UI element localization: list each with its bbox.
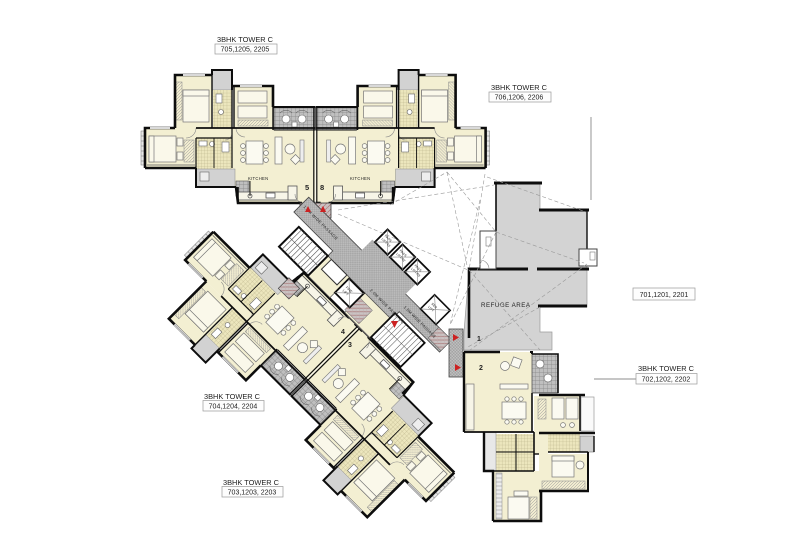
svg-text:3: 3 <box>348 342 352 349</box>
svg-text:8: 8 <box>320 183 324 192</box>
svg-text:REFUGE AREA: REFUGE AREA <box>481 302 531 309</box>
svg-text:KITCHEN: KITCHEN <box>350 176 370 181</box>
svg-text:704,1204, 2204: 704,1204, 2204 <box>209 404 258 411</box>
svg-text:4: 4 <box>341 329 345 336</box>
svg-text:3BHK TOWER C: 3BHK TOWER C <box>223 478 280 487</box>
svg-text:702,1202, 2202: 702,1202, 2202 <box>642 377 691 384</box>
svg-text:3BHK TOWER C: 3BHK TOWER C <box>638 364 695 373</box>
svg-text:KITCHEN: KITCHEN <box>248 176 268 181</box>
svg-text:703,1203, 2203: 703,1203, 2203 <box>228 490 277 497</box>
svg-text:706,1206, 2206: 706,1206, 2206 <box>495 95 544 102</box>
svg-text:705,1205, 2205: 705,1205, 2205 <box>221 47 270 54</box>
svg-text:2: 2 <box>479 365 483 372</box>
svg-text:5: 5 <box>305 183 309 192</box>
svg-text:701,1201, 2201: 701,1201, 2201 <box>640 292 689 299</box>
svg-text:1: 1 <box>477 336 481 343</box>
svg-text:3BHK TOWER C: 3BHK TOWER C <box>491 83 548 92</box>
svg-text:3BHK TOWER C: 3BHK TOWER C <box>204 392 261 401</box>
svg-text:3BHK TOWER C: 3BHK TOWER C <box>217 35 274 44</box>
